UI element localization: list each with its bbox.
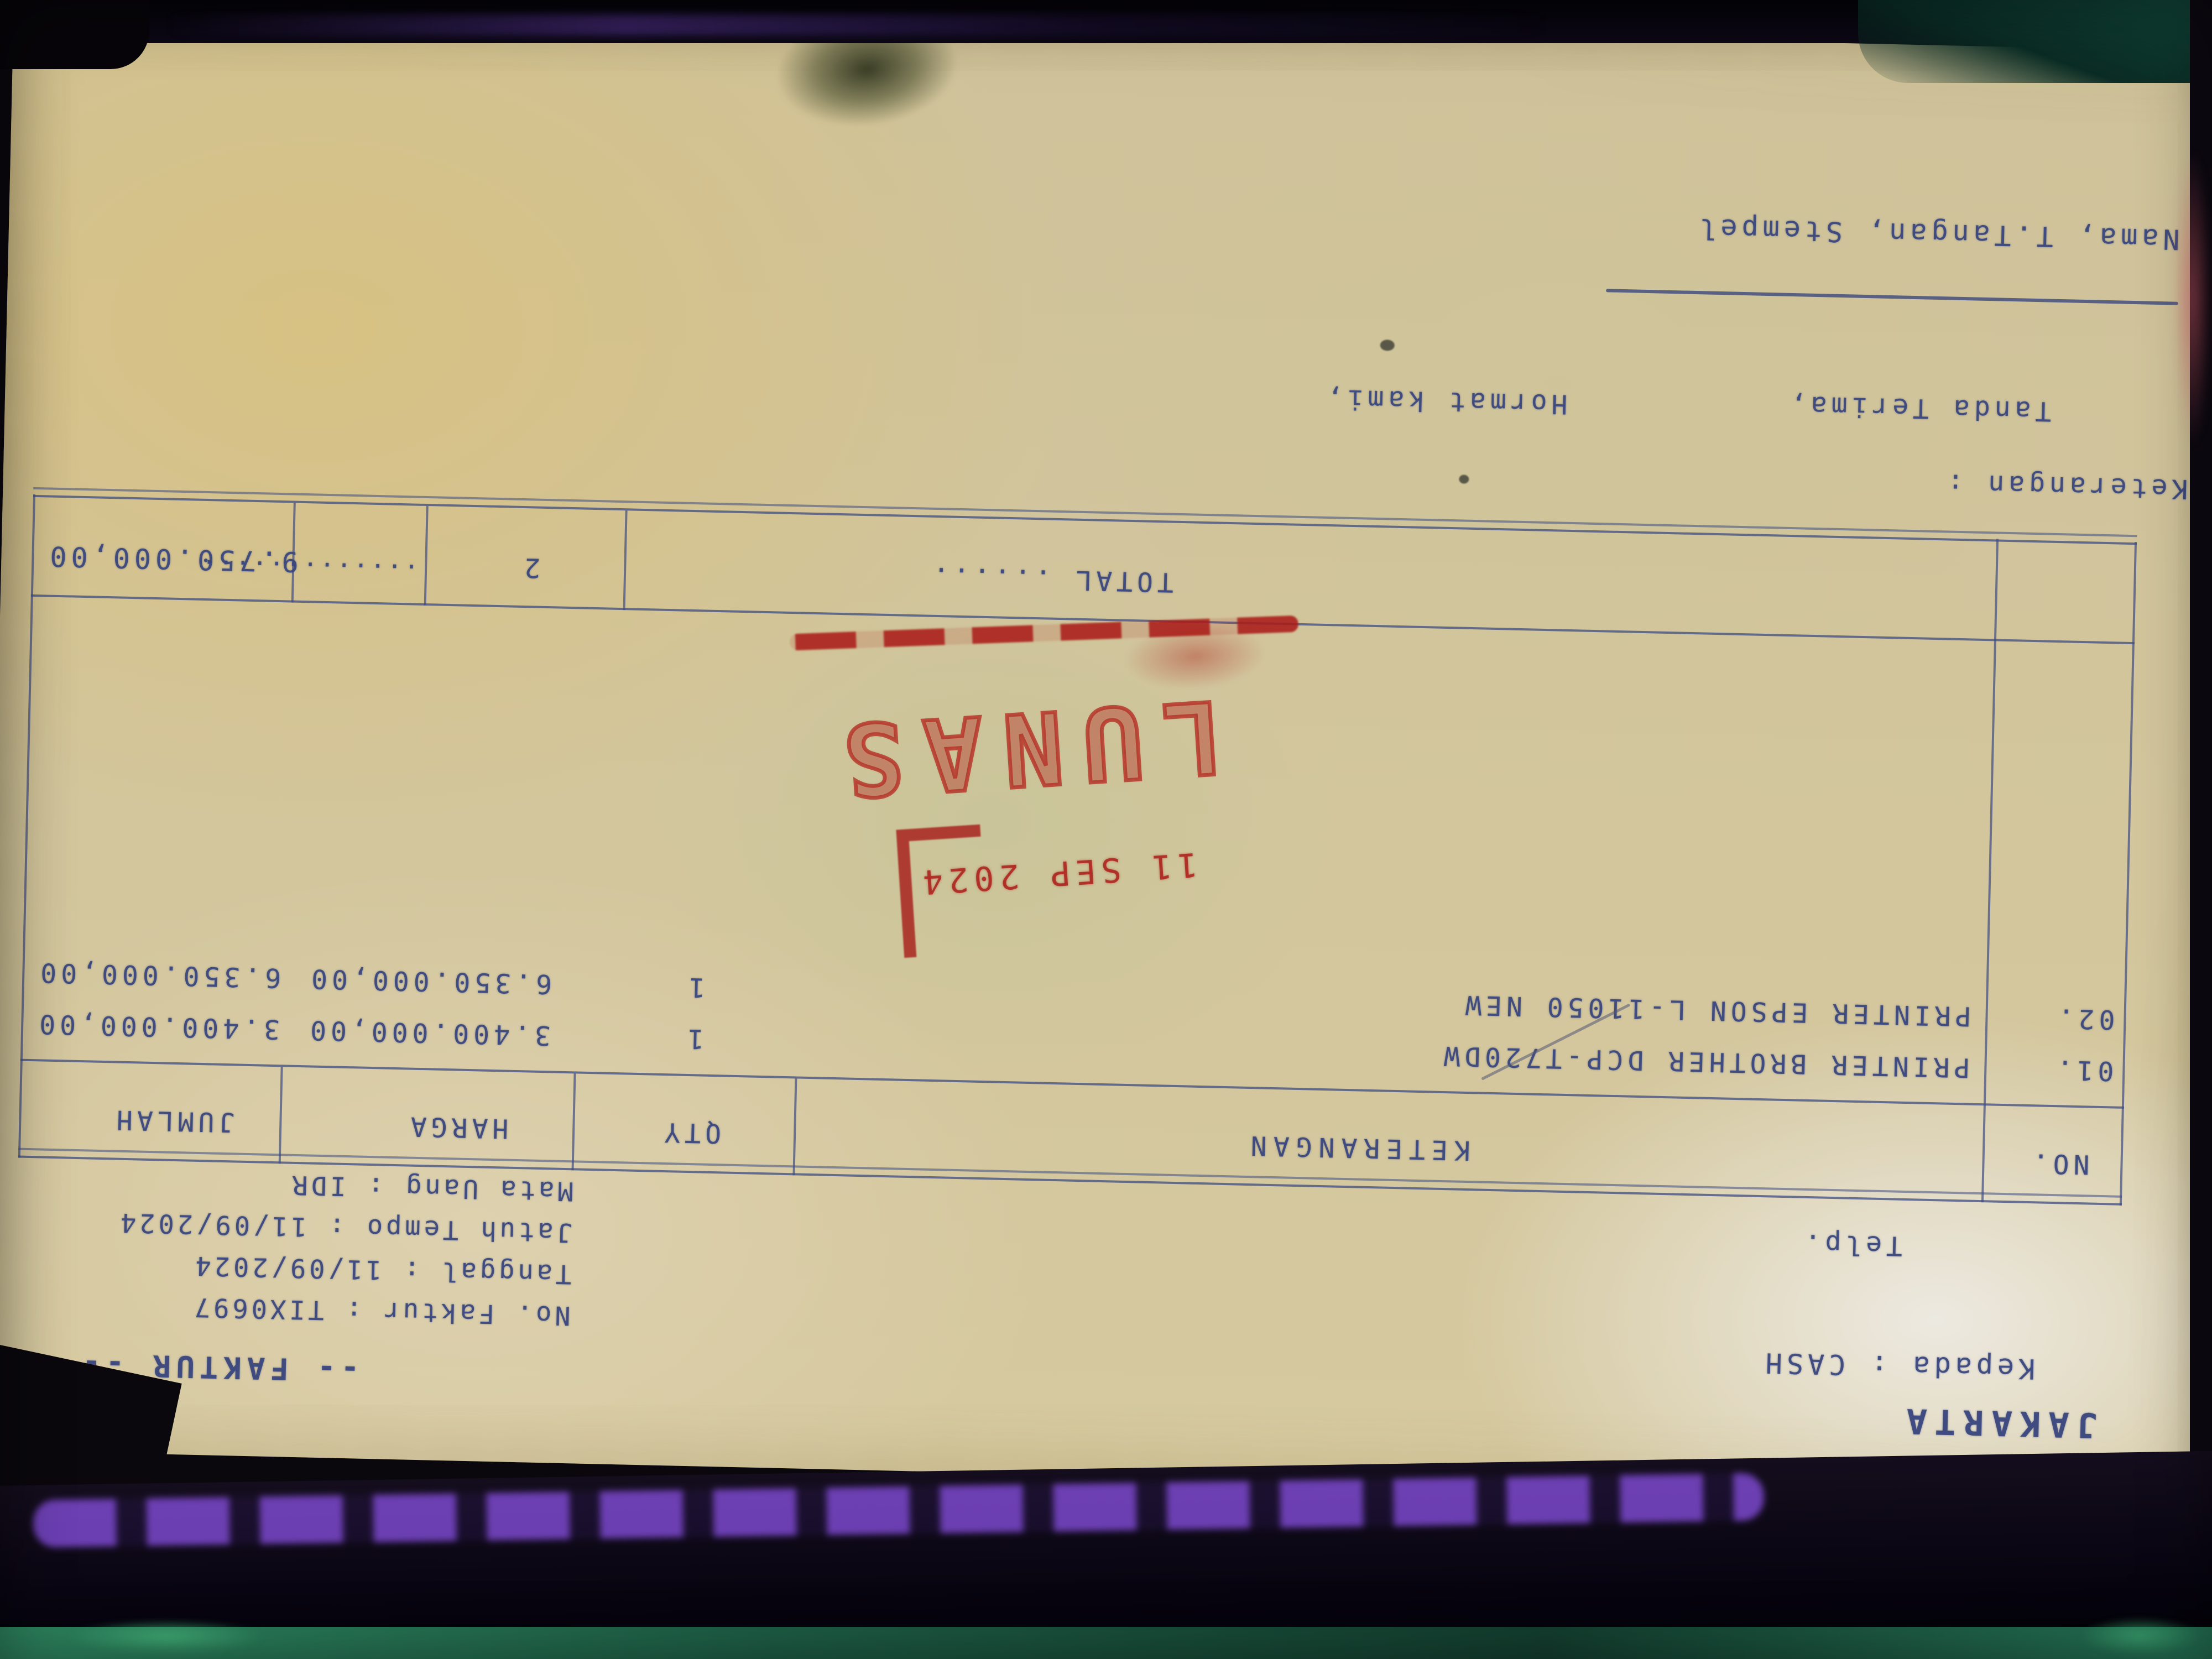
row-harga: 3.400.000,00 (306, 1014, 561, 1051)
th-no: NO. (2028, 1147, 2090, 1180)
bezel-top-purple-glow (166, 14, 1548, 35)
paper-speck (1380, 340, 1395, 351)
stamp-date: 11 SEP 2024 (916, 845, 1199, 902)
stamp-word: LUNAS (820, 677, 1226, 818)
col-sep-jumlah (279, 1067, 283, 1164)
company-city: JAKARTA (1898, 1401, 2098, 1446)
table-bottom-border (33, 495, 2137, 545)
paper-speck (1459, 474, 1469, 483)
nama-ttangan-stempel: Nama, T.Tangan, Stempel (1695, 212, 2180, 255)
bezel-top-right-teal-corner (1858, 0, 2212, 83)
meta-mata-uang: Mata Uang : IDR (289, 1170, 574, 1207)
th-jumlah: JUMLAH (112, 1104, 235, 1138)
th-qty: QTY (660, 1117, 722, 1149)
row-qty: 1 (685, 972, 706, 1003)
total-qty: 2 (520, 552, 541, 583)
total-jumlah: 9.750.000,00 (45, 540, 322, 578)
signature-line (1606, 289, 2178, 305)
kepada-line: Kepada : CASH (1761, 1347, 2036, 1385)
total-qty-box-right (424, 506, 429, 606)
bottom-right-teal-highlight (2079, 1617, 2201, 1656)
stamp-corner-mark (896, 825, 988, 958)
telp-label: Telp. (1800, 1228, 1903, 1261)
stamp-ink-blot (1121, 619, 1269, 695)
invoice-paper: JAKARTA Kepada : CASH Telp. -- FAKTUR --… (0, 2, 2212, 1500)
right-edge-pink-smear (2173, 149, 2212, 448)
row-harga: 6.350.000,00 (307, 963, 562, 999)
meta-tanggal: Tanggal : 11/09/2024 (192, 1250, 572, 1290)
keterangan-label: Keterangan : (1943, 468, 2188, 504)
total-label: TOTAL ...... (928, 561, 1174, 598)
bottom-teal-highlight (66, 1619, 265, 1655)
th-harga: HARGA (406, 1110, 509, 1144)
row-no: 01. (2052, 1054, 2114, 1086)
stamp-dashed-line (790, 615, 1298, 651)
row-keterangan: PRINTER EPSON L-11050 NEW (1461, 989, 1972, 1032)
row-jumlah: 6.350.000,00 (36, 957, 296, 994)
th-keterangan: KETERANGAN (1244, 1130, 1470, 1166)
tanda-terima-label: Tanda Terima, (1786, 390, 2052, 427)
meta-no-faktur: No. Faktur : TIX0697 (191, 1292, 571, 1331)
total-qty-box-left (623, 510, 628, 610)
col-sep-qty (792, 1078, 797, 1175)
table-right-border (18, 494, 35, 1158)
bottom-teal-strip (0, 1627, 2212, 1659)
bezel-top-left-corner (0, 0, 149, 69)
col-sep-harga (572, 1073, 576, 1170)
hormat-kami-label: Hormat kami, (1322, 383, 1568, 420)
row-qty: 1 (683, 1023, 704, 1055)
row-jumlah: 3.400.000,00 (35, 1008, 295, 1045)
invoice-photo: JAKARTA Kepada : CASH Telp. -- FAKTUR --… (0, 0, 2212, 1659)
table-total-top-border (31, 594, 2135, 644)
meta-jatuh-tempo: Jatuh Tempo : 11/09/2024 (117, 1207, 572, 1248)
row-no: 02. (2053, 1003, 2115, 1035)
